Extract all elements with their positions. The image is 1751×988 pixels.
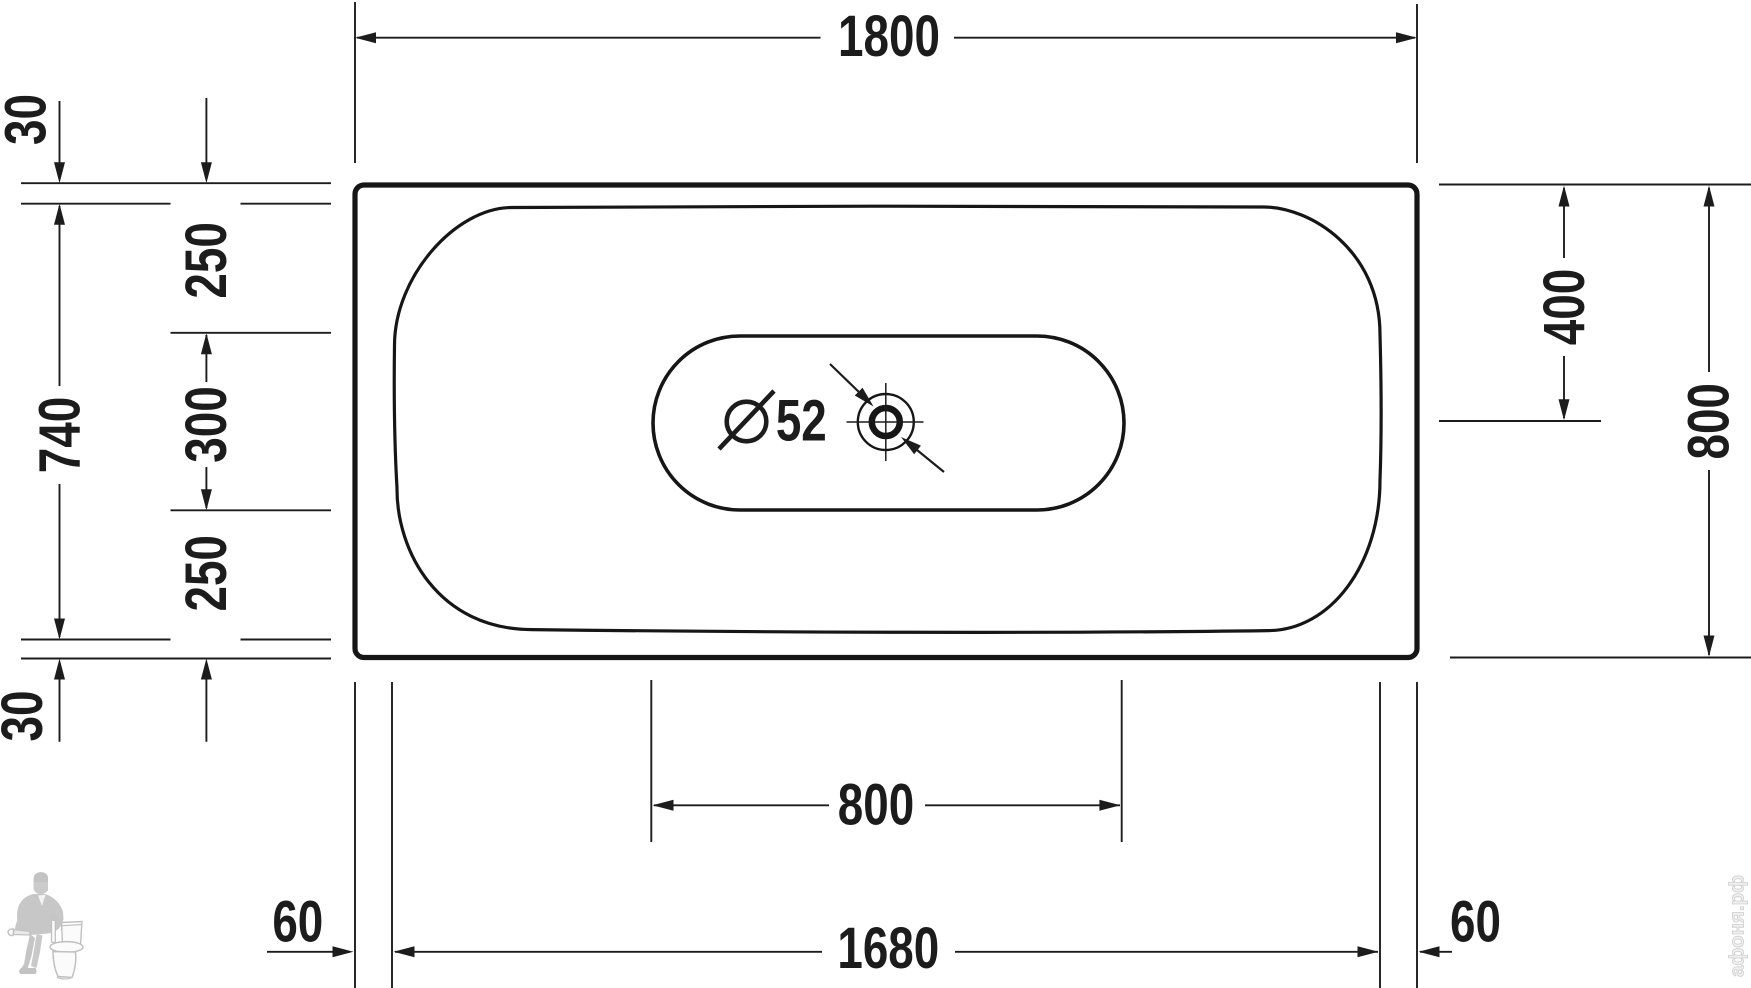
svg-text:афоня.рф: афоня.рф: [1726, 875, 1749, 977]
svg-text:30: 30: [0, 691, 56, 742]
svg-text:1800: 1800: [838, 5, 940, 69]
svg-text:30: 30: [0, 94, 59, 145]
svg-text:250: 250: [175, 535, 239, 611]
svg-text:300: 300: [175, 386, 239, 462]
svg-text:740: 740: [28, 397, 92, 473]
svg-text:60: 60: [272, 890, 323, 954]
svg-text:52: 52: [776, 389, 827, 453]
svg-text:1680: 1680: [837, 917, 939, 981]
svg-text:800: 800: [1678, 383, 1742, 459]
svg-text:60: 60: [1450, 890, 1501, 954]
svg-text:400: 400: [1533, 269, 1597, 345]
svg-text:800: 800: [838, 773, 914, 837]
svg-text:250: 250: [175, 222, 239, 298]
